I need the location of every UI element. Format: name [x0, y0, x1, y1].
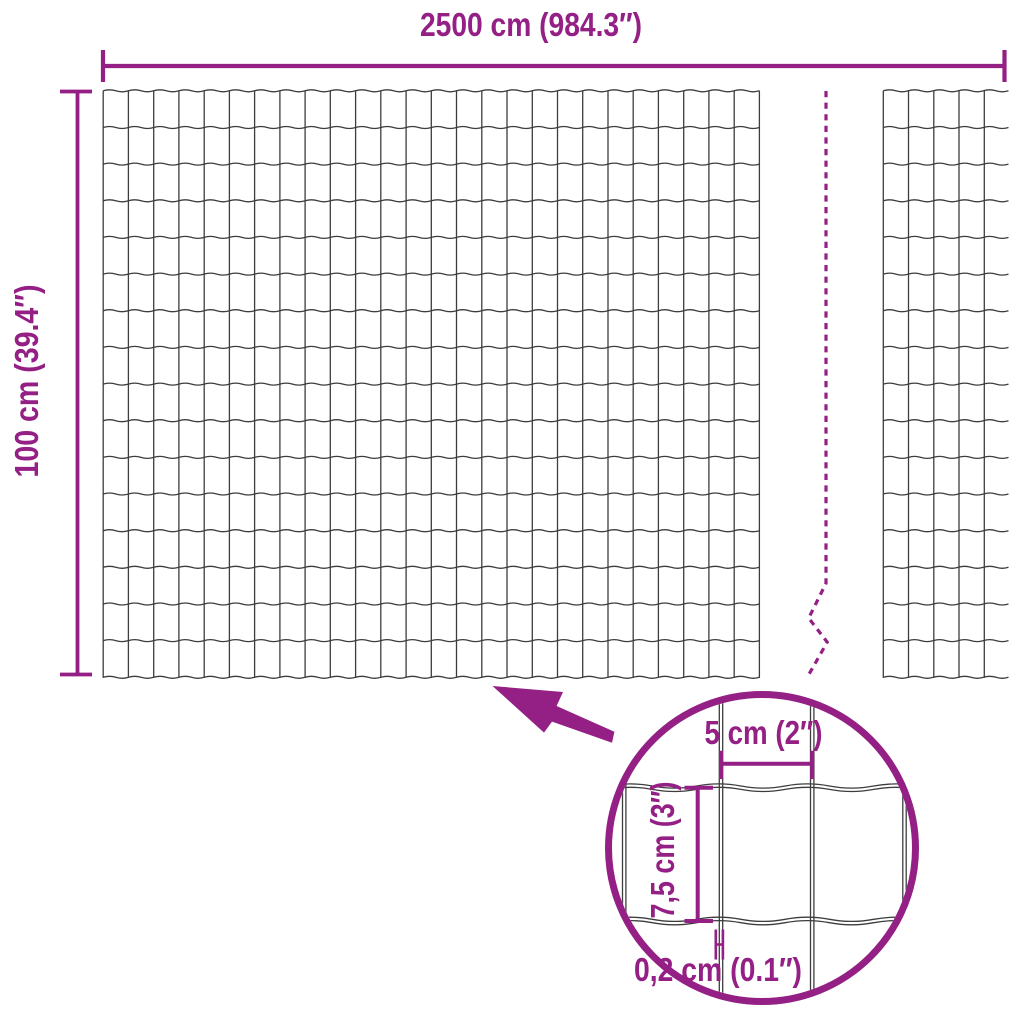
svg-text:0,2 cm (0.1″): 0,2 cm (0.1″) [634, 952, 802, 989]
svg-text:100 cm (39.4″): 100 cm (39.4″) [9, 285, 46, 478]
svg-text:5 cm (2″): 5 cm (2″) [705, 715, 823, 752]
svg-text:7,5 cm (3″): 7,5 cm (3″) [645, 782, 682, 919]
svg-text:2500 cm (984.3″): 2500 cm (984.3″) [420, 7, 642, 44]
